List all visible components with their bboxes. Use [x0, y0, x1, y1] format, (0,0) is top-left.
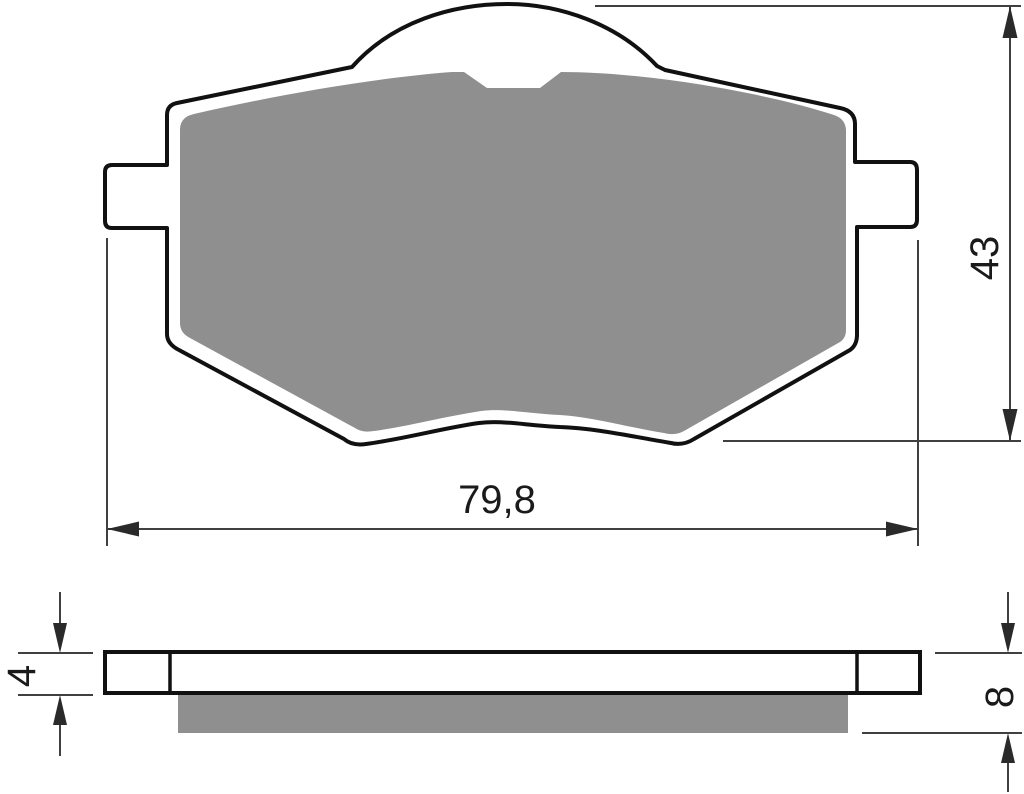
friction-material-side: [178, 693, 848, 733]
arrowhead-down: [1001, 623, 1015, 653]
height-dimension-label: 43: [963, 236, 1007, 281]
backplate-thickness-dimension: 4: [0, 592, 93, 756]
side-view: 4 8: [0, 592, 1022, 792]
arrowhead-up: [1001, 733, 1015, 763]
arrowhead-top: [1003, 6, 1018, 38]
arrowhead-bottom: [1003, 409, 1018, 441]
arrowhead-left: [107, 522, 139, 537]
total-thickness-label: 8: [978, 686, 1022, 708]
backplate-thickness-label: 4: [0, 665, 44, 687]
arrowhead-down: [53, 623, 67, 653]
width-dimension-label: 79,8: [458, 478, 536, 522]
friction-material: [180, 72, 846, 434]
arrowhead-right: [886, 522, 918, 537]
technical-drawing: 79,8 43 4: [0, 0, 1024, 794]
front-view: 79,8 43: [105, 4, 1021, 546]
backplate-side: [105, 652, 920, 693]
arrowhead-up: [53, 695, 67, 725]
